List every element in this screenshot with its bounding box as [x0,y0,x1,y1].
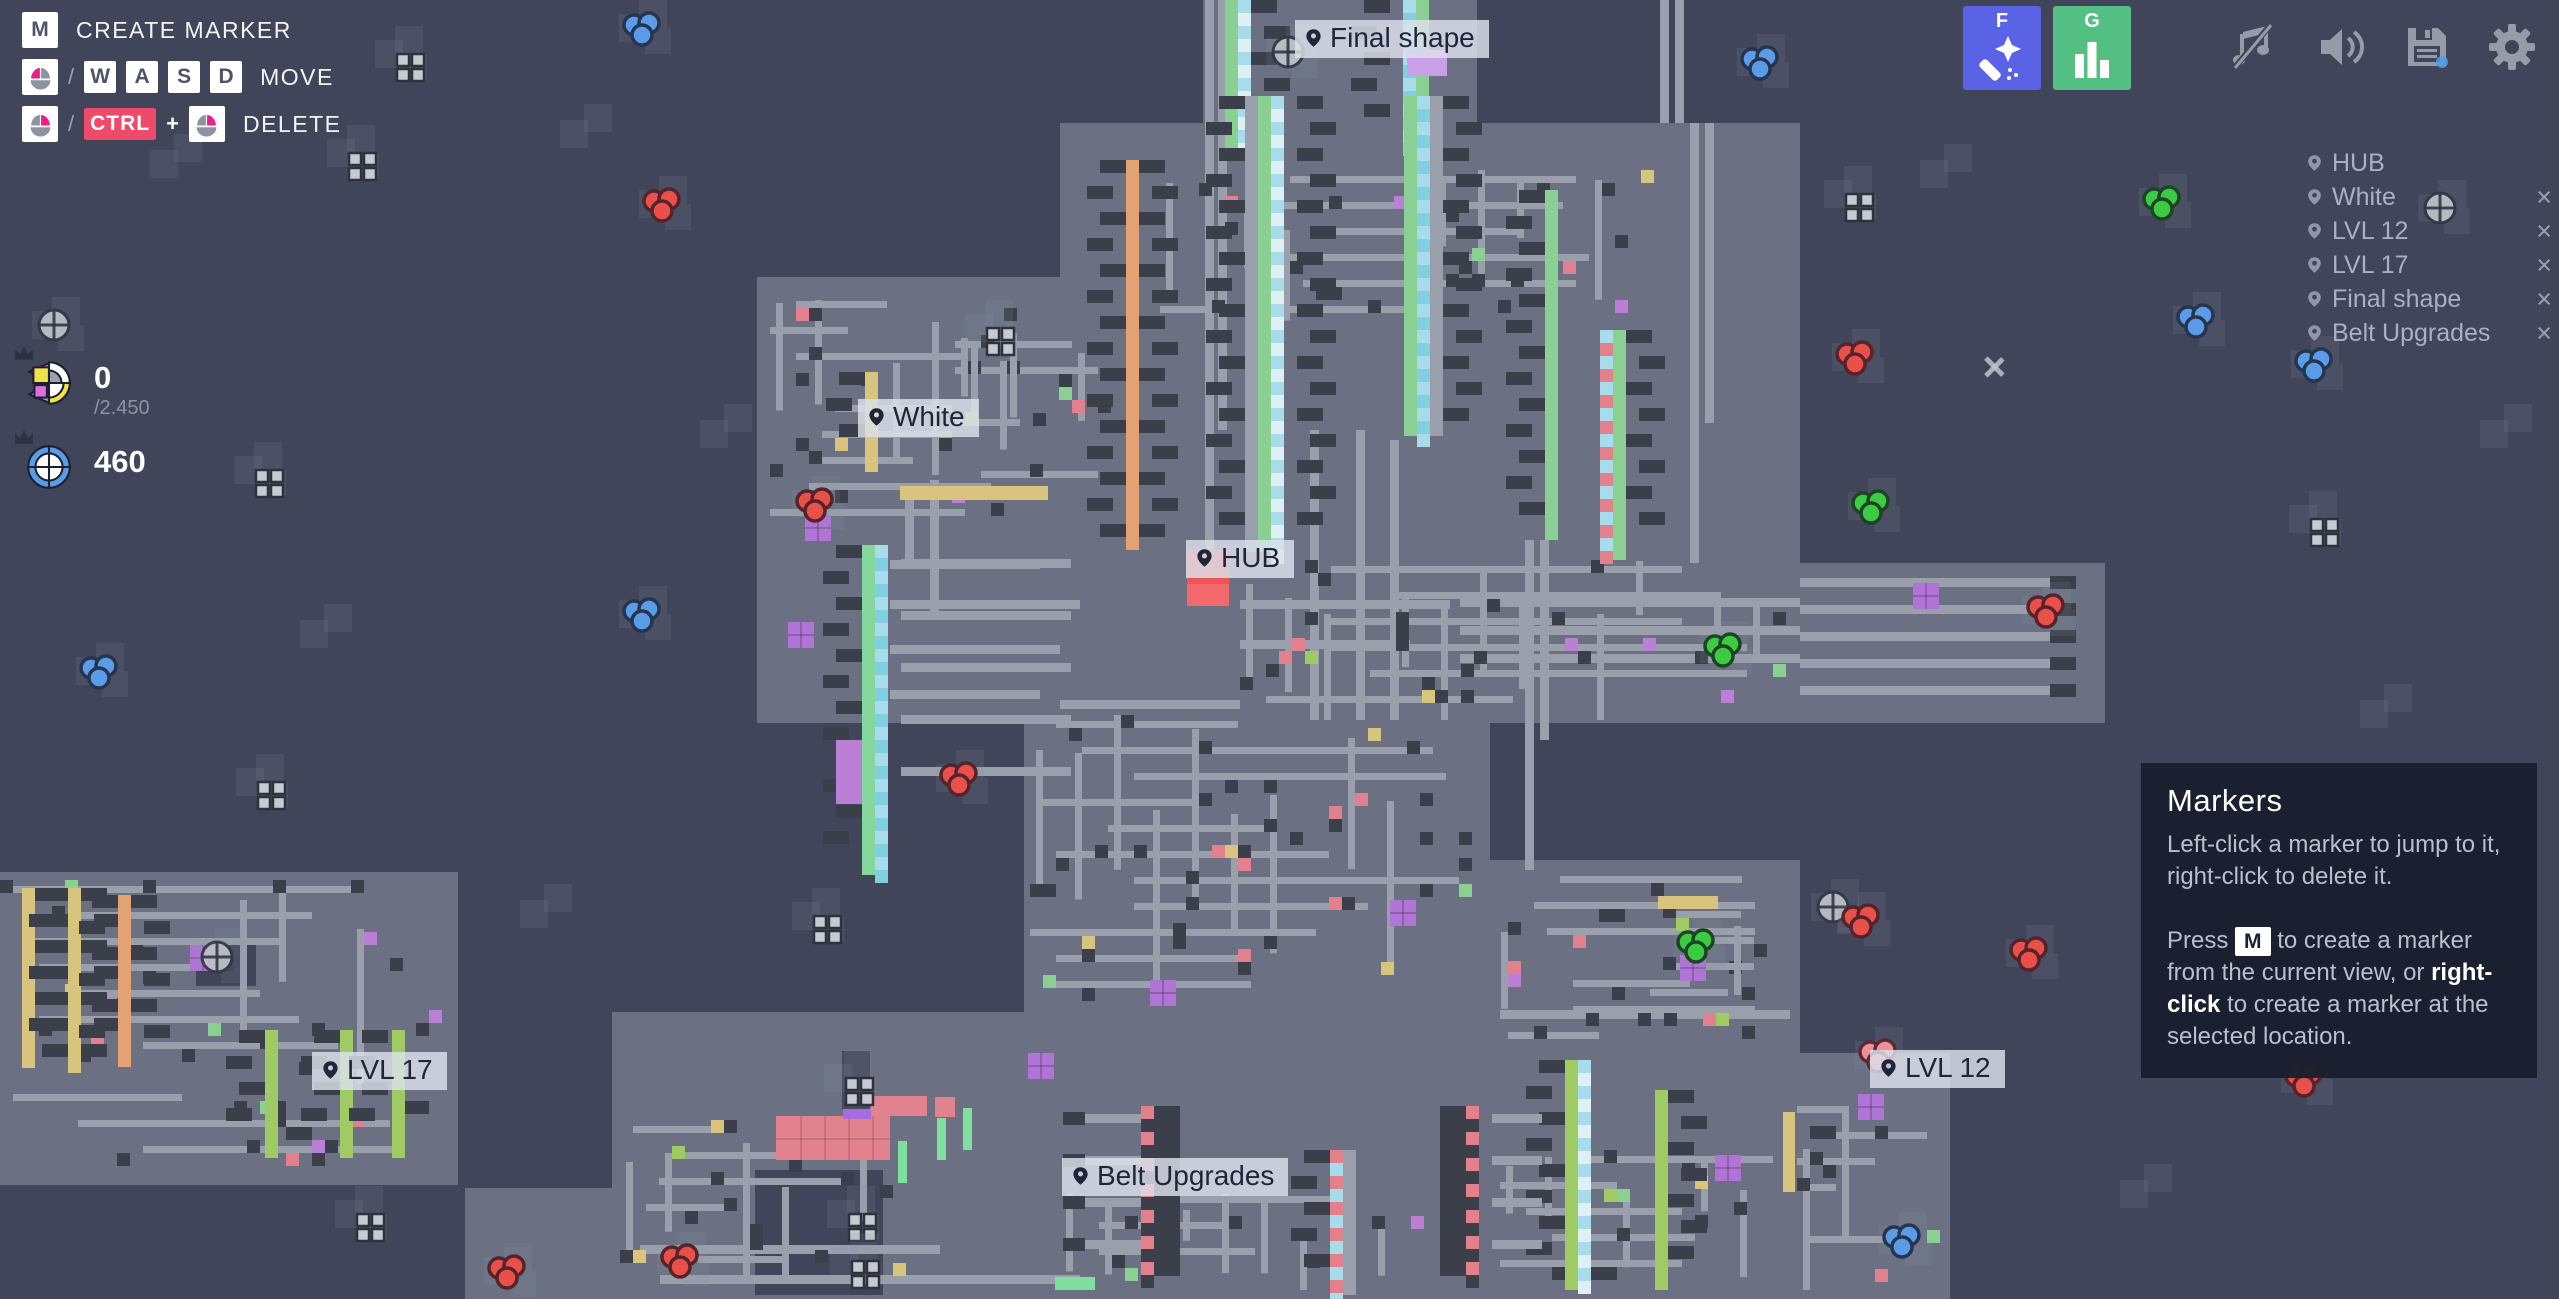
map-marker-text: Belt Upgrades [1097,1160,1274,1192]
tooltip-key-m: M [2235,927,2271,956]
marker-pin-icon [2306,219,2323,243]
settings-gear-icon[interactable] [2487,22,2537,72]
pin-crown-icon [15,346,33,365]
marker-label: LVL 17 [2332,251,2408,280]
legend-move-label: MOVE [260,64,334,91]
marker-delete-button[interactable]: × [2536,184,2552,211]
marker-label: Final shape [2332,285,2461,314]
marker-pin-icon [2306,321,2323,345]
marker-list-item-white[interactable]: White× [2306,180,2552,214]
statistics-button[interactable]: G [2053,6,2131,90]
marker-label: HUB [2332,149,2385,178]
legend-plus: + [166,111,179,137]
wand-mode-button[interactable]: F [1963,6,2041,90]
key-s-badge: S [168,61,200,93]
map-marker-text: HUB [1221,542,1280,574]
marker-pin-icon [2306,287,2323,311]
pinned-shapes: 0 /2.450 460 [24,358,150,519]
map-marker-label-white[interactable]: White [858,399,979,437]
key-a-badge: A [126,61,158,93]
key-ctrl-badge: CTRL [84,108,156,140]
map-marker-label-lvl-17[interactable]: LVL 17 [312,1052,447,1090]
map-marker-label-lvl-12[interactable]: LVL 12 [1870,1050,2005,1088]
map-marker-text: LVL 17 [347,1054,433,1086]
marker-pin-icon [2306,185,2323,209]
marker-list: HUBWhite×LVL 12×LVL 17×Final shape×Belt … [2306,146,2552,350]
map-marker-text: Final shape [1330,22,1475,54]
pin-crown-icon-2 [15,430,33,449]
blueprint-shape-icon[interactable] [24,442,74,497]
legend-slash: / [68,64,74,90]
map-marker-text: LVL 12 [1905,1052,1991,1084]
marker-delete-button[interactable]: × [2536,252,2552,279]
wand-key-label: F [1996,10,2008,32]
legend-slash-2: / [68,111,74,137]
tooltip-line1: Left-click a marker to jump to it, right… [2167,829,2511,893]
marker-label: Belt Upgrades [2332,319,2490,348]
marker-delete-button[interactable]: × [2536,286,2552,313]
mouse-right-icon-2 [189,106,225,142]
pinned-shape-freeplay[interactable]: 0 /2.450 [24,358,150,420]
marker-pin-icon [2306,253,2323,277]
key-w-badge: W [84,61,116,93]
map-marker-label-belt-upgrades[interactable]: Belt Upgrades [1062,1158,1288,1196]
markers-tooltip: Markers Left-click a marker to jump to i… [2141,763,2537,1078]
key-m-badge: M [22,12,58,48]
map-marker-text: White [893,401,965,433]
marker-list-item-final-shape[interactable]: Final shape× [2306,282,2552,316]
marker-delete-button[interactable]: × [2536,320,2552,347]
bar-chart-icon [2069,32,2115,85]
legend-row-delete: / CTRL + DELETE [22,106,341,142]
marker-label: LVL 12 [2332,217,2408,246]
map-marker-label-hub[interactable]: HUB [1186,540,1294,578]
stats-key-label: G [2084,10,2100,32]
map-view[interactable]: M CREATE MARKER / W A S D MOVE [0,0,2559,1299]
map-marker-label-final-shape[interactable]: Final shape [1295,20,1489,58]
save-icon[interactable] [2402,22,2452,72]
legend-delete-label: DELETE [243,111,341,138]
mouse-right-icon [22,106,58,142]
pinned-shape-blueprint[interactable]: 460 [24,442,150,497]
keybinding-legend: M CREATE MARKER / W A S D MOVE [22,12,341,153]
blueprint-count: 460 [94,446,146,479]
marker-pin-icon [2306,151,2323,175]
legend-row-move: / W A S D MOVE [22,59,341,95]
freeplay-shape-icon[interactable] [24,358,74,413]
magic-wand-icon [1979,32,2025,85]
key-d-badge: D [210,61,242,93]
tooltip-title: Markers [2167,783,2511,819]
marker-list-item-lvl-17[interactable]: LVL 17× [2306,248,2552,282]
marker-label: White [2332,183,2396,212]
mouse-left-icon [22,59,58,95]
tooltip-line2: Press M to create a marker from the curr… [2167,925,2511,1053]
freeplay-goal: /2.450 [94,397,150,420]
marker-list-item-lvl-12[interactable]: LVL 12× [2306,214,2552,248]
sound-icon[interactable] [2317,22,2367,72]
world-map[interactable] [0,0,2559,1299]
legend-row-create-marker: M CREATE MARKER [22,12,341,48]
marker-delete-button[interactable]: × [2536,218,2552,245]
music-muted-icon[interactable] [2227,22,2277,72]
freeplay-count: 0 [94,362,150,395]
marker-list-item-belt-upgrades[interactable]: Belt Upgrades× [2306,316,2552,350]
marker-list-item-hub[interactable]: HUB [2306,146,2552,180]
legend-create-marker-label: CREATE MARKER [76,17,292,44]
